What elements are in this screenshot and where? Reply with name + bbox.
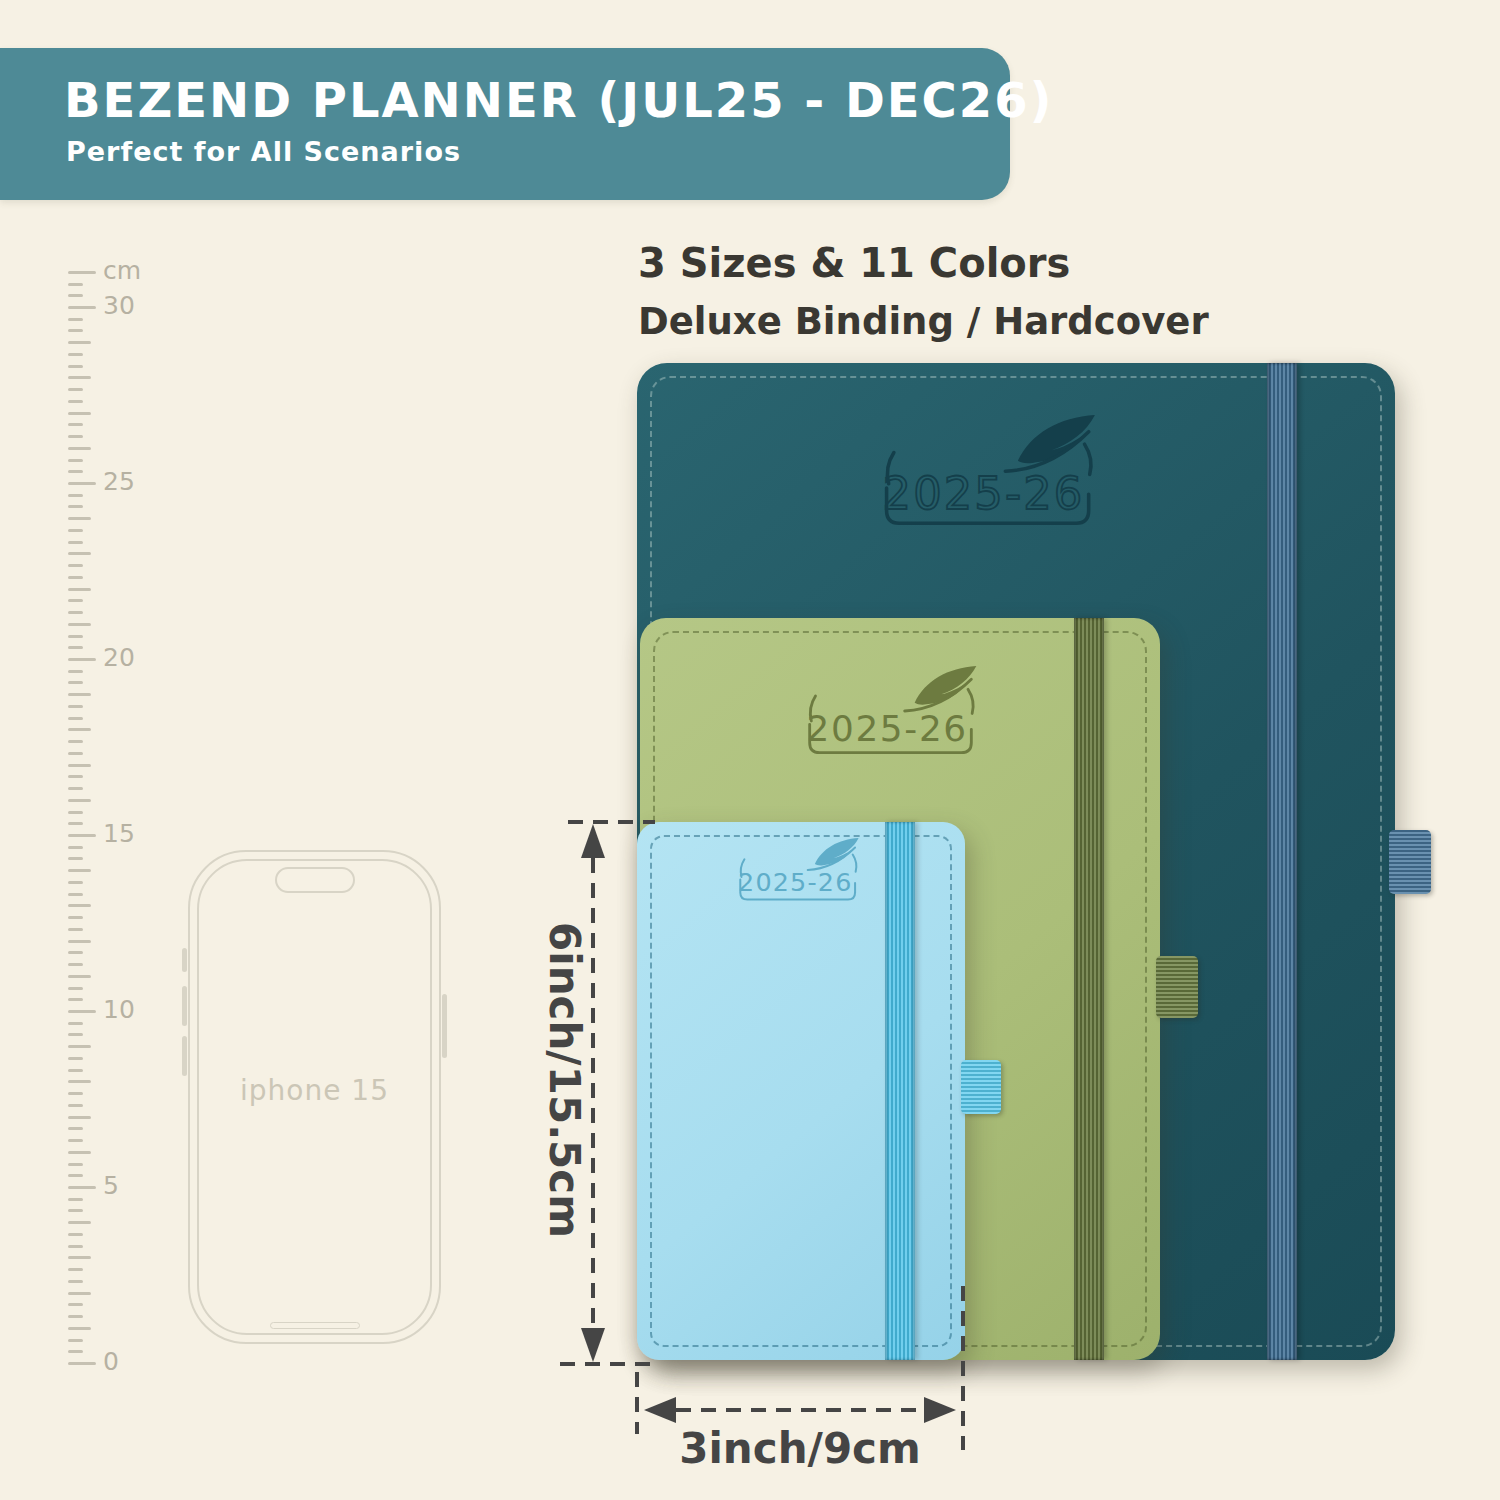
elastic-band — [1267, 363, 1297, 1360]
ruler-tick — [68, 329, 83, 332]
pen-loop — [1156, 956, 1198, 1018]
year-emboss: 2025-26 — [872, 415, 1122, 540]
ruler-tick — [68, 376, 91, 379]
ruler-tick — [68, 517, 91, 520]
ruler-tick — [68, 1092, 83, 1095]
ruler-tick — [68, 1163, 83, 1166]
ruler-tick — [68, 1198, 83, 1201]
ruler-tick — [68, 1327, 91, 1330]
ruler-tick — [68, 447, 91, 450]
page-title: BEZEND PLANNER (JUL25 - DEC26) — [0, 48, 1010, 128]
ruler-tick — [68, 799, 91, 802]
ruler-tick — [68, 1010, 96, 1013]
ruler-tick — [68, 658, 96, 661]
ruler-tick — [68, 365, 83, 368]
ruler-label: 30 — [103, 291, 135, 320]
iphone-volume-up-button — [182, 986, 187, 1026]
ruler-tick — [68, 728, 91, 731]
feature-line-binding: Deluxe Binding / Hardcover — [638, 300, 1209, 343]
ruler-label: 25 — [103, 467, 135, 496]
arrow-down — [581, 1328, 605, 1362]
year-emboss: 2025-26 — [798, 666, 998, 766]
ruler-tick — [68, 928, 83, 931]
ruler-tick — [68, 271, 96, 274]
header-banner: BEZEND PLANNER (JUL25 - DEC26) Perfect f… — [0, 48, 1010, 200]
feature-line-sizes-colors: 3 Sizes & 11 Colors — [638, 240, 1209, 286]
ruler-tick — [68, 1339, 83, 1342]
ruler-tick — [68, 1350, 83, 1353]
ruler-tick — [68, 846, 83, 849]
arrow-left — [644, 1397, 676, 1423]
ruler-tick — [68, 1362, 96, 1365]
ruler-tick — [68, 1104, 83, 1107]
ruler-tick — [68, 1069, 83, 1072]
ruler-tick — [68, 775, 83, 778]
ruler-tick — [68, 987, 83, 990]
ruler-tick — [68, 1233, 83, 1236]
ruler-label: 15 — [103, 819, 135, 848]
ruler-tick — [68, 940, 91, 943]
ruler-tick — [68, 294, 83, 297]
year-emboss: 2025-26 — [732, 838, 874, 909]
ruler-tick — [68, 681, 83, 684]
ruler-tick — [68, 1080, 91, 1083]
elastic-band — [1074, 618, 1104, 1360]
ruler-tick — [68, 400, 83, 403]
ruler-tick — [68, 1057, 83, 1060]
ruler-tick — [68, 811, 83, 814]
arrow-right — [924, 1397, 956, 1423]
ruler-tick — [68, 1209, 83, 1212]
ruler-tick — [68, 353, 83, 356]
ruler-tick — [68, 1292, 91, 1295]
ruler-label: 10 — [103, 995, 135, 1024]
ruler-tick — [68, 951, 83, 954]
height-dimension-label: 6inch/15.5cm — [540, 922, 589, 1238]
ruler-tick — [68, 705, 83, 708]
ruler-tick — [68, 693, 91, 696]
page-subtitle: Perfect for All Scenarios — [66, 136, 1010, 167]
ruler-tick — [68, 529, 83, 532]
ruler-tick — [68, 904, 91, 907]
ruler-tick — [68, 998, 83, 1001]
ruler-tick — [68, 717, 83, 720]
ruler-label: 20 — [103, 643, 135, 672]
ruler-tick — [68, 470, 83, 473]
ruler-tick — [68, 1174, 83, 1177]
ruler-tick — [68, 306, 96, 309]
ruler-tick — [68, 552, 91, 555]
ruler-tick — [68, 1151, 91, 1154]
ruler-tick — [68, 787, 83, 790]
ruler-tick — [68, 893, 83, 896]
ruler-tick — [68, 857, 83, 860]
ruler-tick — [68, 435, 83, 438]
ruler-tick — [68, 916, 83, 919]
ruler-tick — [68, 1045, 91, 1048]
arrow-up — [581, 824, 605, 858]
ruler-tick — [68, 1268, 83, 1271]
elastic-band — [885, 822, 915, 1360]
ruler-tick — [68, 623, 91, 626]
iphone-volume-down-button — [182, 1036, 187, 1076]
ruler-tick — [68, 341, 91, 344]
product-infographic: BEZEND PLANNER (JUL25 - DEC26) Perfect f… — [0, 0, 1500, 1500]
ruler-tick — [68, 1022, 83, 1025]
year-label: 2025-26 — [738, 867, 853, 897]
ruler-tick — [68, 459, 83, 462]
ruler-label: 5 — [103, 1171, 119, 1200]
ruler-tick — [68, 764, 91, 767]
iphone-mute-switch — [182, 948, 187, 972]
right-bracket — [1085, 444, 1091, 474]
pen-loop — [1389, 830, 1431, 894]
ruler-tick — [68, 494, 83, 497]
ruler-tick — [68, 1139, 83, 1142]
ruler-tick — [68, 635, 83, 638]
ruler-tick — [68, 834, 96, 837]
ruler-tick — [68, 576, 83, 579]
ruler-tick — [68, 963, 83, 966]
year-label: 2025-26 — [883, 467, 1085, 520]
ruler-tick — [68, 646, 83, 649]
ruler-tick — [68, 975, 91, 978]
ruler-tick — [68, 752, 83, 755]
ruler-tick — [68, 1221, 91, 1224]
ruler-tick — [68, 423, 83, 426]
ruler-tick — [68, 482, 96, 485]
ruler-tick — [68, 318, 83, 321]
ruler-tick — [68, 740, 83, 743]
ruler-tick — [68, 1303, 83, 1306]
ruler-tick — [68, 599, 83, 602]
width-dimension-label: 3inch/9cm — [679, 1424, 921, 1473]
iphone-outline: iphone 15 — [188, 850, 441, 1344]
ruler-tick — [68, 1127, 83, 1130]
ruler-tick — [68, 505, 83, 508]
ruler-tick — [68, 1033, 83, 1036]
feature-text-block: 3 Sizes & 11 Colors Deluxe Binding / Har… — [638, 240, 1209, 343]
ruler-tick — [68, 283, 83, 286]
ruler-tick — [68, 564, 83, 567]
ruler-tick — [68, 1116, 91, 1119]
ruler-label: cm — [103, 256, 141, 285]
iphone-power-button — [442, 994, 447, 1058]
pen-loop — [961, 1060, 1001, 1114]
ruler-tick — [68, 1280, 83, 1283]
iphone-home-bar — [270, 1322, 360, 1329]
ruler-tick — [68, 388, 83, 391]
ruler-tick — [68, 670, 83, 673]
right-bracket — [968, 689, 973, 713]
iphone-label: iphone 15 — [190, 1074, 439, 1107]
ruler-tick — [68, 1186, 96, 1189]
ruler-tick — [68, 822, 83, 825]
small-blue-planner: 2025-26 — [637, 822, 965, 1360]
ruler-tick — [68, 588, 91, 591]
ruler-tick — [68, 1245, 83, 1248]
ruler-tick — [68, 881, 83, 884]
ruler-tick — [68, 412, 91, 415]
ruler-tick — [68, 541, 83, 544]
ruler-tick — [68, 869, 91, 872]
ruler-tick — [68, 1256, 91, 1259]
ruler-label: 0 — [103, 1347, 119, 1376]
right-bracket — [853, 855, 857, 872]
ruler-tick — [68, 1315, 83, 1318]
dynamic-island — [275, 867, 355, 893]
ruler-tick — [68, 611, 83, 614]
year-label: 2025-26 — [806, 708, 967, 749]
